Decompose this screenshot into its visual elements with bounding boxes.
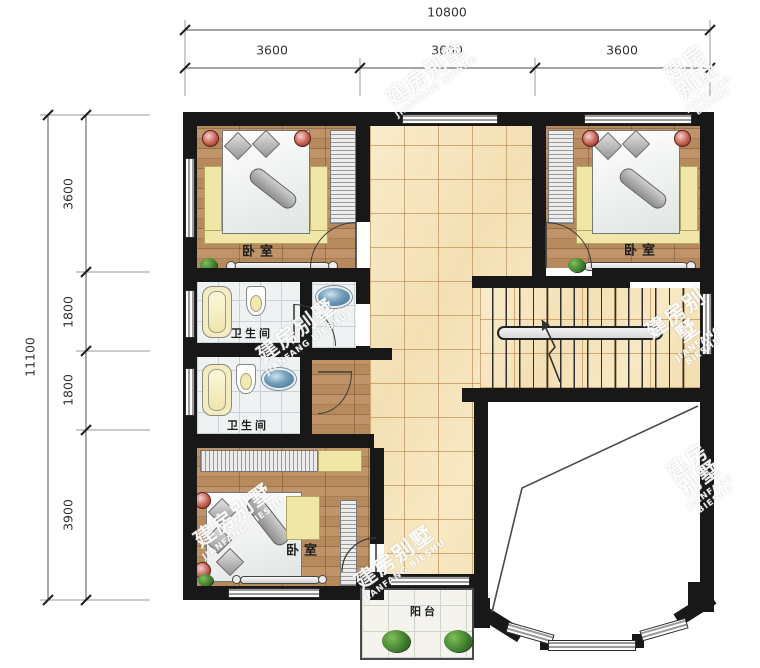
room-label-bedroom: 卧室 — [242, 241, 278, 260]
dim-segment: 3600 — [61, 178, 76, 210]
washbasin — [316, 286, 352, 308]
dim-total-height: 11100 — [23, 337, 38, 377]
dim-segment: 3600 — [256, 43, 288, 58]
window — [584, 114, 692, 124]
dim-total-width: 10800 — [427, 5, 467, 20]
wall-stair-top — [472, 276, 630, 288]
room-label-bathroom: 卫生间 — [231, 325, 273, 341]
seat-cap — [318, 575, 327, 584]
room-label-bedroom: 卧室 — [286, 540, 322, 559]
wall-interior — [532, 126, 546, 282]
window — [702, 293, 712, 355]
watermark: 建房别墅JIANFANG BIESHU — [381, 36, 480, 120]
bay-window — [548, 640, 636, 651]
plant-icon — [198, 574, 213, 586]
nightstand — [286, 496, 320, 540]
wall-interior — [370, 448, 384, 544]
stair-handrail — [497, 326, 663, 340]
wall-interior — [356, 126, 370, 222]
window — [185, 290, 195, 338]
double-height-void — [488, 402, 700, 618]
plant-icon — [382, 630, 410, 652]
window — [185, 368, 195, 416]
dim-segment: 3600 — [606, 43, 638, 58]
dim-segment: 1800 — [61, 296, 76, 328]
watermark: 建房别墅JIANFANG BIESHU — [655, 37, 741, 123]
wardrobe — [330, 130, 356, 224]
window — [402, 114, 498, 124]
balcony-door-window — [390, 576, 470, 586]
dim-segment: 1800 — [61, 374, 76, 406]
room-label-bedroom: 卧室 — [624, 240, 660, 259]
window-seat — [240, 576, 320, 584]
lamp-icon — [294, 130, 311, 147]
room-label-bathroom: 卫生间 — [227, 417, 269, 433]
washbasin — [262, 368, 296, 390]
seat-cap — [232, 575, 241, 584]
floor-plan-canvas: 10800 3600 3600 3600 11100 3600 1800 180… — [0, 0, 760, 668]
wardrobe — [548, 130, 574, 224]
toilet — [236, 364, 256, 394]
wall-interior — [183, 268, 370, 282]
wall-stair-bottom — [462, 388, 714, 402]
window — [228, 588, 320, 598]
wall-interior — [183, 343, 312, 357]
lamp-icon — [674, 130, 691, 147]
wall-interior — [183, 434, 374, 448]
toilet — [246, 286, 266, 316]
nightstand — [204, 166, 222, 238]
dim-segment: 3900 — [61, 499, 76, 531]
bathtub — [202, 364, 232, 416]
bay-window — [639, 618, 688, 642]
plant-icon — [444, 630, 472, 652]
window — [185, 158, 195, 238]
wall-interior — [312, 348, 392, 360]
cabinet — [318, 450, 362, 472]
room-label-balcony: 阳台 — [410, 603, 438, 619]
dim-segment: 3600 — [431, 43, 463, 58]
lamp-icon — [582, 130, 599, 147]
lamp-icon — [202, 130, 219, 147]
nightstand — [310, 166, 328, 238]
dresser — [340, 500, 357, 586]
wardrobe — [200, 450, 318, 472]
nightstand — [680, 166, 698, 238]
bathtub — [202, 286, 232, 338]
